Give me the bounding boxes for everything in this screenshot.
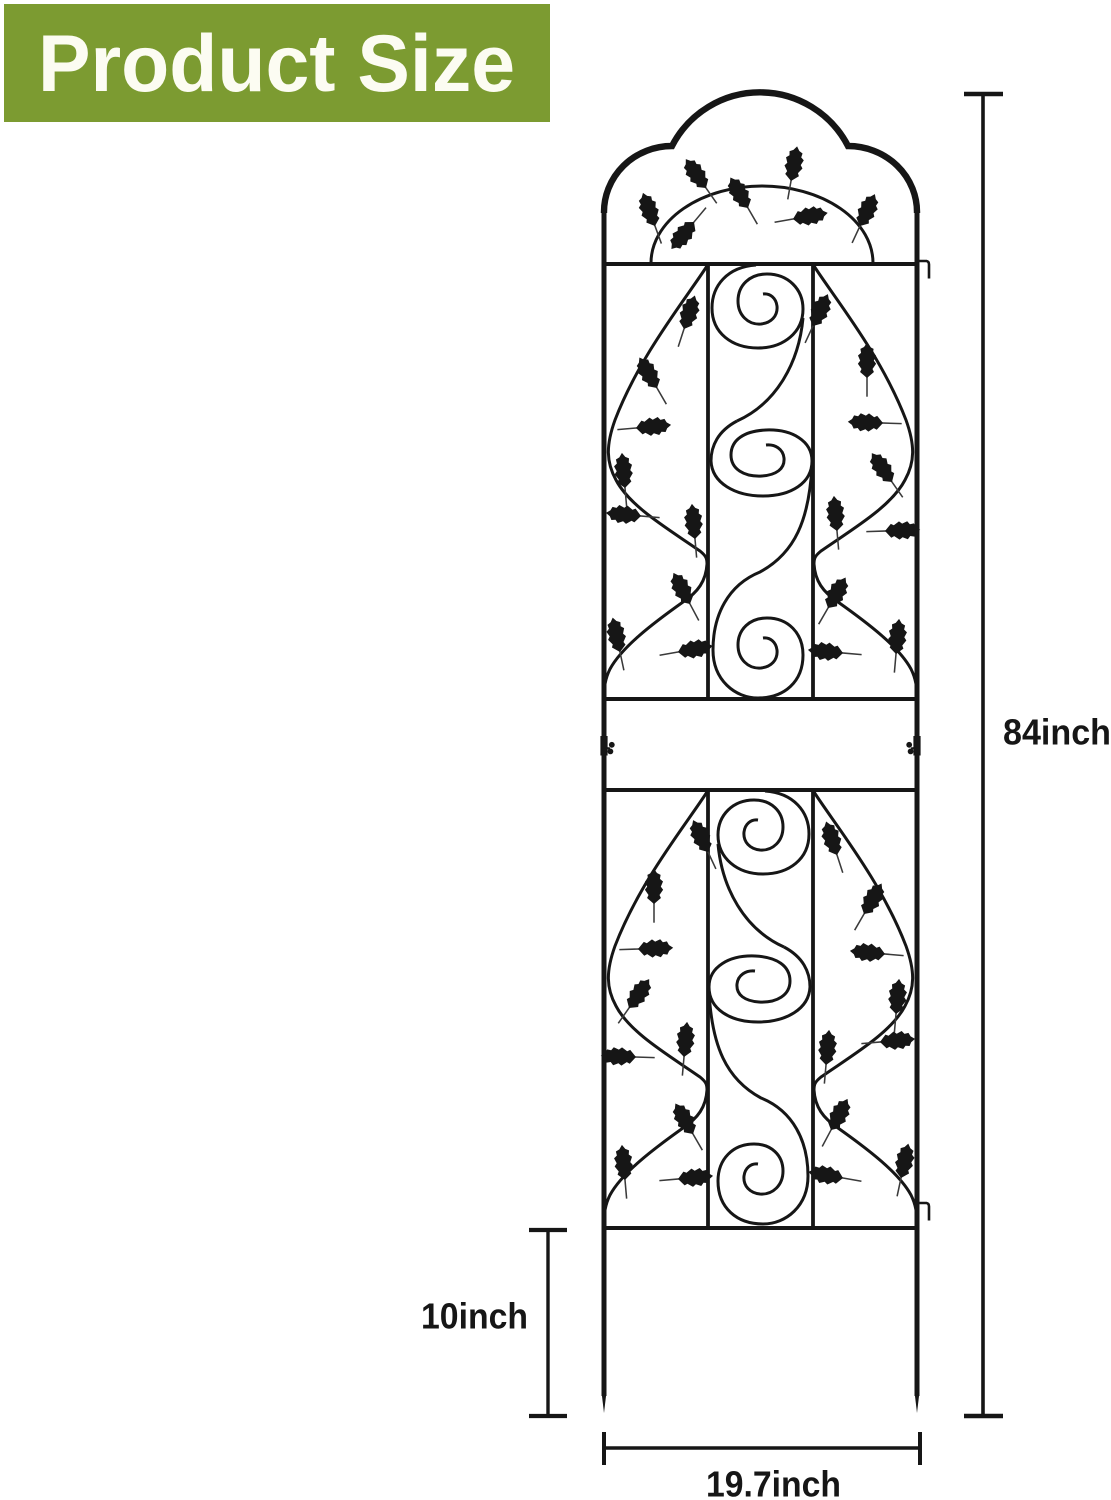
- svg-text:19.7inch: 19.7inch: [706, 1464, 841, 1500]
- svg-text:Product Size: Product Size: [38, 19, 515, 109]
- svg-text:84inch: 84inch: [1003, 712, 1111, 753]
- svg-text:10inch: 10inch: [421, 1296, 528, 1337]
